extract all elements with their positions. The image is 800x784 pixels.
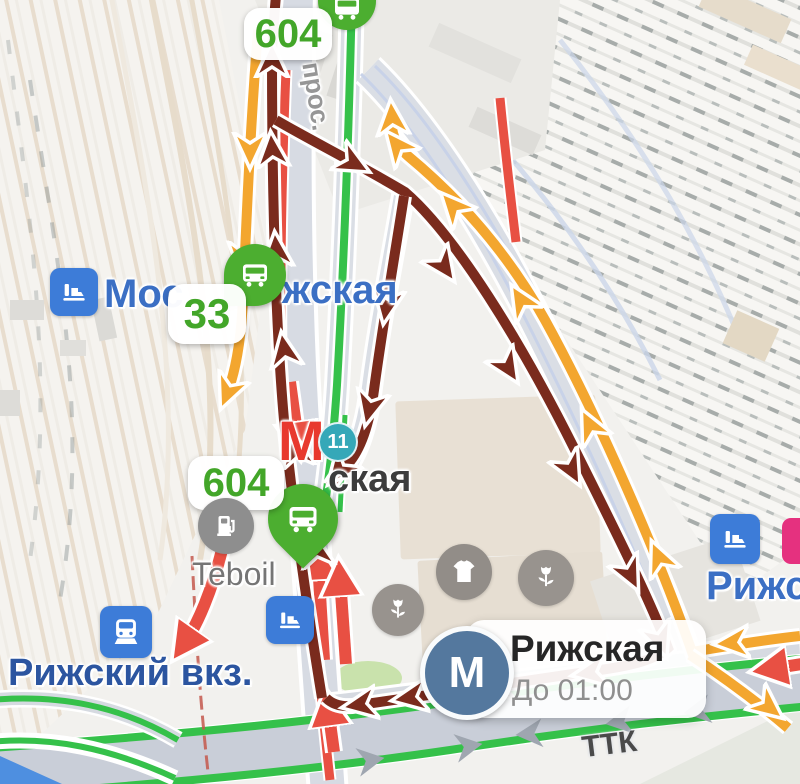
mcd-line-icon[interactable] (782, 518, 800, 564)
map-canvas[interactable]: прос. М 11 Мос жская 33 604 ская 604 Teb… (0, 0, 800, 784)
suburban-train-icon[interactable] (50, 268, 98, 316)
tulip-glyph (384, 596, 412, 624)
flower-shop-icon[interactable] (518, 550, 574, 606)
locomotive-glyph (719, 523, 751, 555)
tulip-glyph (531, 563, 561, 593)
bus-icon (285, 501, 321, 537)
route-33-badge[interactable]: 33 (168, 284, 246, 344)
station-label-right[interactable]: Рижс (706, 564, 800, 609)
train-front-glyph (109, 615, 143, 649)
train-terminal-icon[interactable] (100, 606, 152, 658)
clothing-store-icon[interactable] (436, 544, 492, 600)
fuel-pump-glyph (211, 511, 241, 541)
road-shield: 11 (318, 422, 358, 462)
tshirt-glyph (449, 557, 479, 587)
suburban-train-icon[interactable] (710, 514, 760, 564)
popup-schedule: До 01:00 (512, 674, 633, 708)
metro-logo[interactable]: М (420, 626, 514, 720)
platform-icon[interactable] (266, 596, 314, 644)
tram-glyph (275, 605, 305, 635)
ring-road-label: ТТК (580, 725, 639, 765)
popup-station-name: Рижская (510, 628, 664, 670)
rail-terminal-label[interactable]: Рижский вкз. (8, 652, 252, 695)
metro-label-partial[interactable]: ская (328, 458, 411, 501)
locomotive-glyph (58, 276, 90, 308)
fuel-brand-label[interactable]: Teboil (192, 556, 276, 593)
route-604-badge-top[interactable]: 604 (244, 8, 332, 60)
flower-shop-icon[interactable] (372, 584, 424, 636)
fuel-station-icon[interactable] (198, 498, 254, 554)
bus-icon (331, 0, 363, 24)
bus-icon (239, 259, 271, 291)
station-label-left-suffix[interactable]: жская (282, 268, 398, 313)
